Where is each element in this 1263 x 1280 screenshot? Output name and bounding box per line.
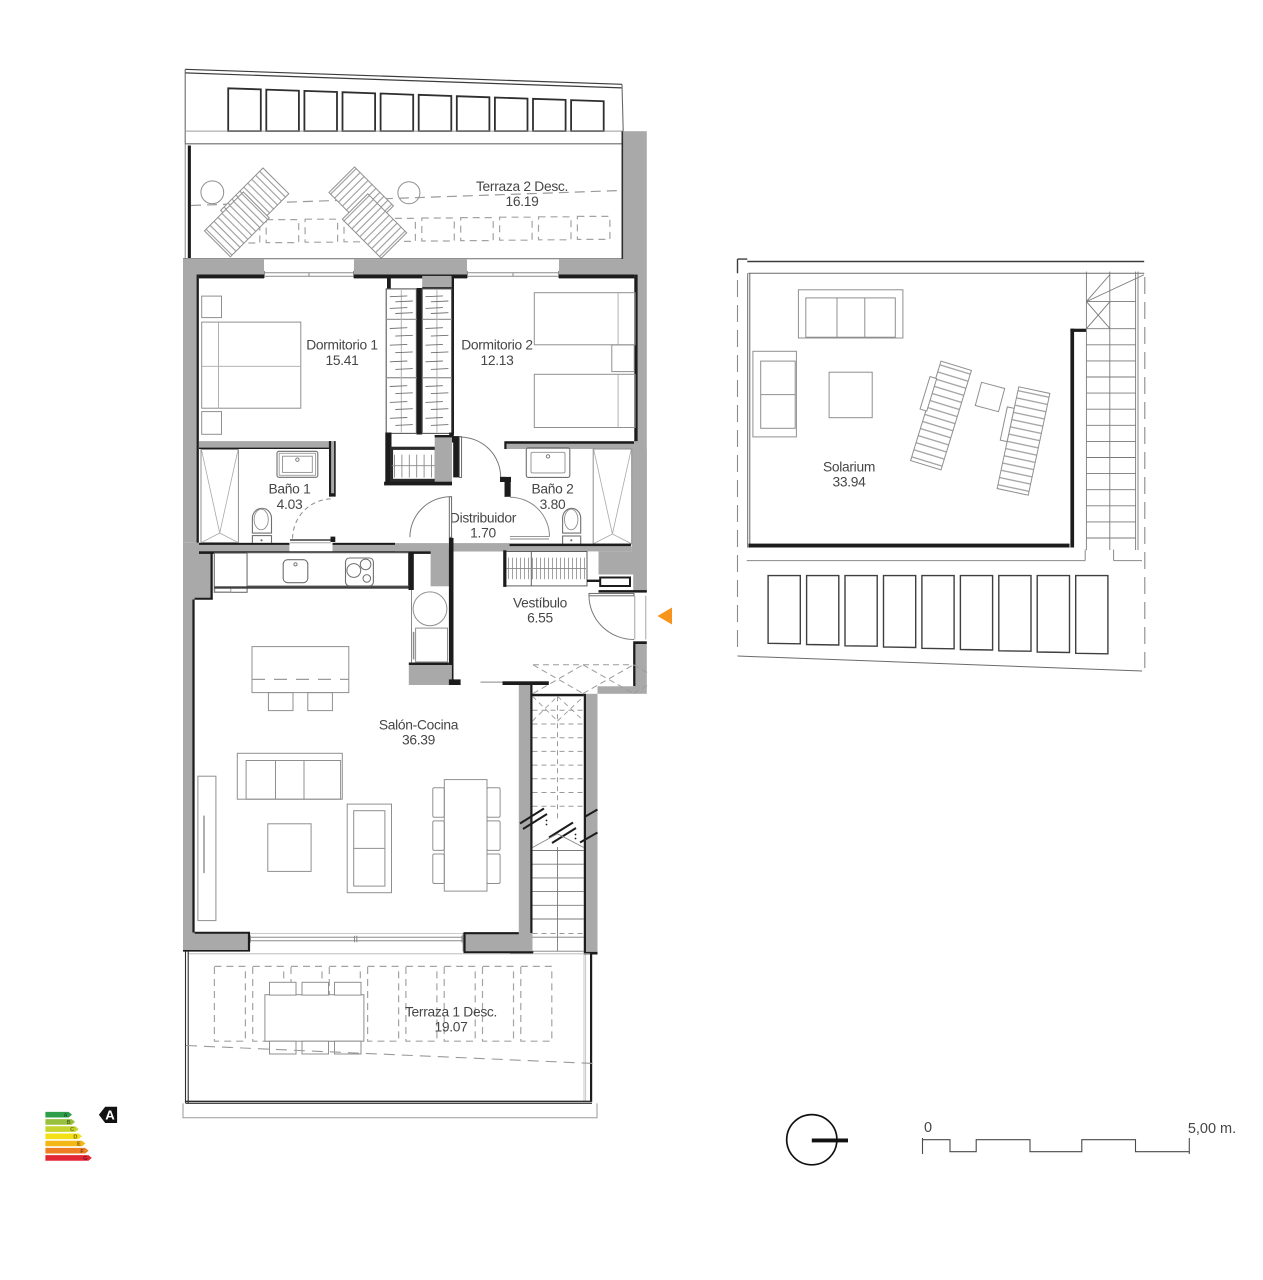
svg-text:5,00 m.: 5,00 m. [1188,1121,1236,1137]
svg-text:Terraza 1 Desc.: Terraza 1 Desc. [405,1005,497,1020]
svg-text:33.94: 33.94 [832,475,866,490]
svg-text:Dormitorio 1: Dormitorio 1 [306,338,378,353]
svg-text:C: C [70,1127,74,1133]
svg-text:36.39: 36.39 [402,733,436,748]
svg-text:12.13: 12.13 [480,353,514,368]
svg-text:B: B [67,1120,71,1126]
svg-text:Distribuidor: Distribuidor [450,511,517,526]
svg-text:D: D [73,1134,77,1140]
svg-text:19.07: 19.07 [434,1020,467,1035]
svg-text:Terraza 2 Desc.: Terraza 2 Desc. [476,179,568,194]
svg-text:F: F [80,1149,84,1155]
svg-text:4.03: 4.03 [277,497,303,512]
svg-text:Vestíbulo: Vestíbulo [513,596,568,611]
svg-text:6.55: 6.55 [527,611,553,626]
svg-text:16.19: 16.19 [505,194,539,209]
svg-text:Dormitorio 2: Dormitorio 2 [461,338,533,353]
svg-text:0: 0 [924,1120,932,1136]
svg-text:E: E [77,1142,81,1148]
svg-text:Baño 1: Baño 1 [269,482,311,497]
svg-text:3.80: 3.80 [540,497,566,512]
svg-text:1.70: 1.70 [470,526,496,541]
svg-text:Solarium: Solarium [823,460,875,475]
svg-text:G: G [83,1156,87,1162]
svg-text:Baño 2: Baño 2 [532,482,574,497]
svg-text:Salón-Cocina: Salón-Cocina [379,718,459,733]
svg-text:15.41: 15.41 [325,353,358,368]
svg-text:A: A [105,1108,115,1123]
svg-text:A: A [63,1113,67,1119]
